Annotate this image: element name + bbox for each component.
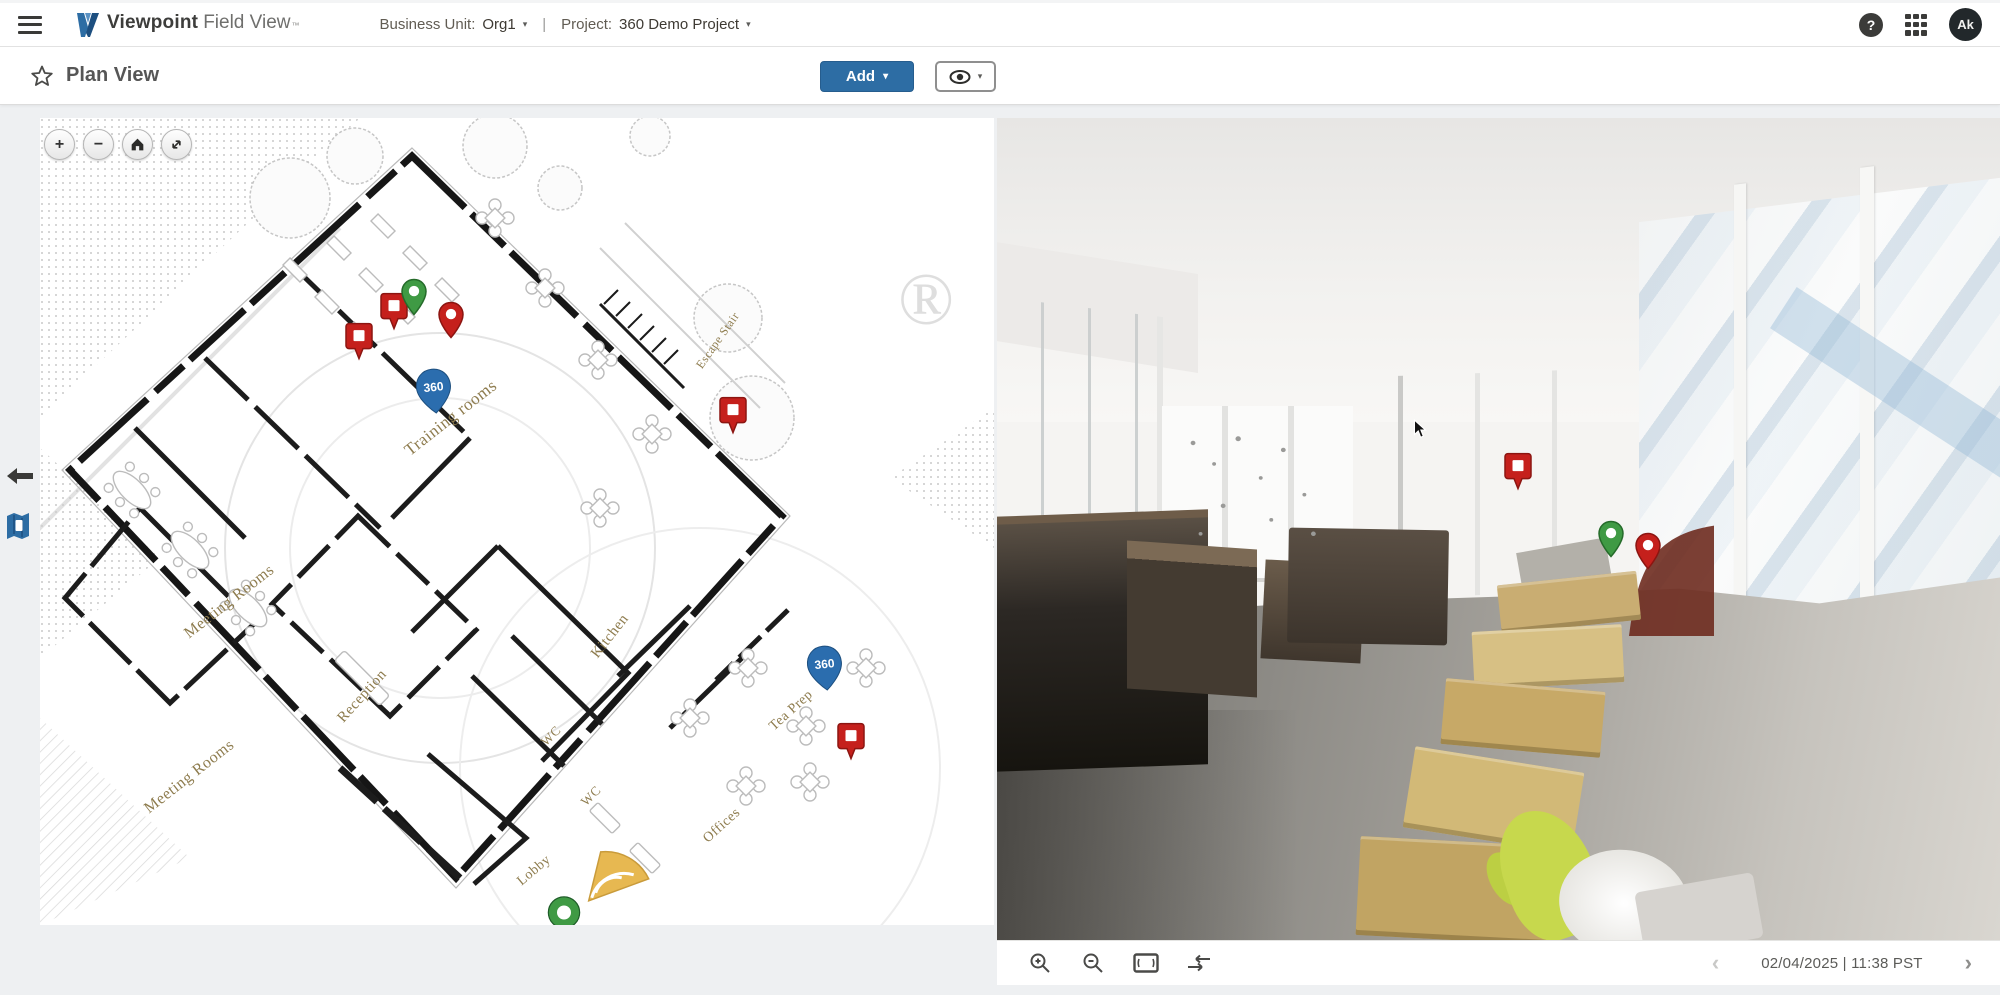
add-caret-icon: ▾ xyxy=(883,71,888,82)
photo-pin-layer xyxy=(997,118,2000,940)
pin-camera-ring[interactable] xyxy=(547,896,581,925)
map-icon[interactable] xyxy=(5,512,31,540)
star-icon[interactable] xyxy=(30,64,54,88)
plan-panel[interactable]: Escape Stair Training rooms Meeting Room… xyxy=(40,118,994,925)
photo-compare-button[interactable] xyxy=(1186,950,1212,976)
pin-red-circle[interactable] xyxy=(438,301,465,343)
photo-zoom-in-button[interactable] xyxy=(1027,950,1053,976)
pin-task-square[interactable] xyxy=(719,396,747,439)
back-arrow-icon[interactable] xyxy=(6,466,34,486)
left-strip xyxy=(0,104,40,995)
plan-zoom-controls: + − xyxy=(44,129,192,160)
pin-badge-360[interactable]: 360 xyxy=(806,645,844,697)
chevron-right-icon[interactable]: › xyxy=(1965,952,1972,974)
compare-arrows-icon xyxy=(1186,952,1212,974)
pin-task-square[interactable] xyxy=(345,323,373,366)
eye-caret-icon: ▾ xyxy=(978,71,983,82)
topbar: Viewpoint Field View ™ Business Unit: Or… xyxy=(0,0,2000,47)
zoom-out-button[interactable]: − xyxy=(83,129,114,160)
pin-badge-360[interactable]: 360 xyxy=(415,369,453,421)
photo-fullscreen-button[interactable] xyxy=(1133,950,1159,976)
photo-date-nav: ‹ 02/04/2025 | 11:38 PST › xyxy=(1712,952,1984,974)
brand-name-bold: Viewpoint xyxy=(107,12,198,34)
fullscreen-icon xyxy=(1133,953,1159,973)
subheader-bar: Plan View Add ▾ ▾ xyxy=(0,47,2000,105)
zoom-extents-icon xyxy=(169,137,184,152)
brand-trademark: ™ xyxy=(292,21,300,30)
zoom-in-button[interactable]: + xyxy=(44,129,75,160)
zoom-out-icon xyxy=(1081,951,1105,975)
business-unit-label: Business Unit: xyxy=(380,16,476,33)
pin-task-square[interactable] xyxy=(1504,452,1532,495)
visibility-dropdown-button[interactable]: ▾ xyxy=(935,61,996,92)
main-content: Escape Stair Training rooms Meeting Room… xyxy=(0,104,2000,995)
photo-zoom-out-button[interactable] xyxy=(1080,950,1106,976)
project-label: Project: xyxy=(561,16,612,33)
photo-toolbar: ‹ 02/04/2025 | 11:38 PST › xyxy=(997,940,2000,985)
pin-task-square[interactable] xyxy=(837,722,865,765)
app-root: Viewpoint Field View ™ Business Unit: Or… xyxy=(0,0,2000,995)
svg-text:360: 360 xyxy=(814,656,836,672)
plan-pin-layer: 360360 xyxy=(40,118,994,925)
add-button-label: Add xyxy=(846,68,875,85)
brand-logo: Viewpoint Field View ™ xyxy=(76,12,300,38)
topbar-right: ? Ak xyxy=(1859,8,1982,41)
eye-icon xyxy=(949,70,971,84)
hamburger-menu-icon[interactable] xyxy=(18,16,42,34)
business-unit-value[interactable]: Org1 xyxy=(482,16,515,33)
home-button[interactable] xyxy=(122,129,153,160)
apps-grid-icon[interactable] xyxy=(1905,14,1927,36)
mouse-cursor xyxy=(1413,419,1427,439)
page-title: Plan View xyxy=(66,64,159,87)
zoom-extents-button[interactable] xyxy=(161,129,192,160)
pin-red-circle[interactable] xyxy=(1634,532,1661,574)
brand-name-light: Field View xyxy=(203,12,290,34)
photo-toolbar-icons xyxy=(1027,950,1212,976)
pin-camera-fan xyxy=(585,846,651,907)
add-button[interactable]: Add ▾ xyxy=(820,61,914,92)
project-caret-icon[interactable]: ▾ xyxy=(746,19,751,30)
context-divider: | xyxy=(542,16,546,33)
photo-360-viewer[interactable] xyxy=(997,118,2000,940)
zoom-in-icon xyxy=(1028,951,1052,975)
project-value[interactable]: 360 Demo Project xyxy=(619,16,739,33)
svg-text:360: 360 xyxy=(423,379,445,395)
business-unit-caret-icon[interactable]: ▾ xyxy=(523,19,528,30)
pin-green-circle[interactable] xyxy=(1597,521,1624,563)
home-icon xyxy=(130,137,145,152)
help-icon[interactable]: ? xyxy=(1859,13,1883,37)
viewpoint-logo-icon xyxy=(76,12,100,38)
pin-green-circle[interactable] xyxy=(400,279,427,321)
photo-date-display: 02/04/2025 | 11:38 PST xyxy=(1761,955,1922,972)
chevron-left-icon[interactable]: ‹ xyxy=(1712,952,1719,974)
context-bar: Business Unit: Org1 ▾ | Project: 360 Dem… xyxy=(380,16,751,33)
page-title-group: Plan View xyxy=(30,47,159,104)
avatar[interactable]: Ak xyxy=(1949,8,1982,41)
